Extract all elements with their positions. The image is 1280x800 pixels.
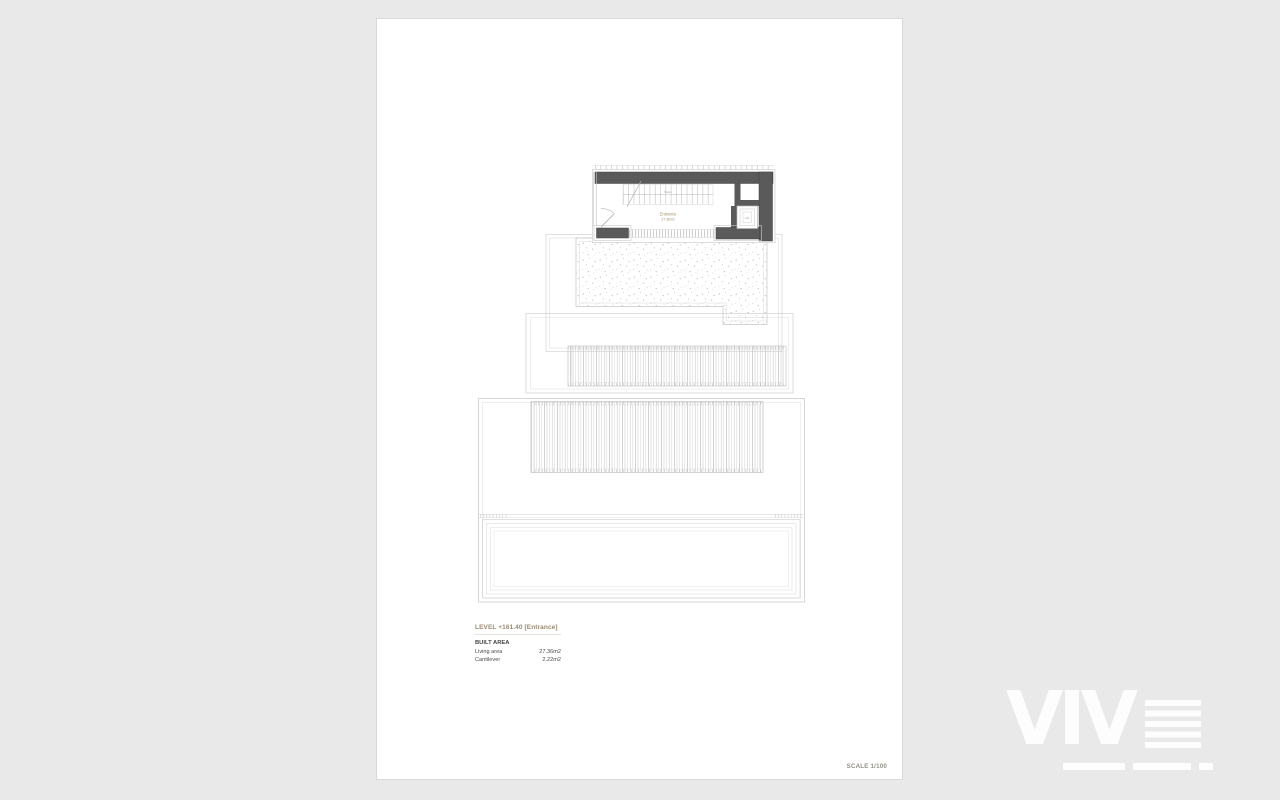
watermark-subtitle-bar [1133,763,1191,770]
title-block: LEVEL +161.40 [Entrance] BUILT AREA Livi… [475,624,561,664]
staircase [623,181,713,207]
floor-plan-drawing: Lift Stairs Entrance 27.36m2 [377,19,904,781]
drawing-sheet: Lift Stairs Entrance 27.36m2 LEVEL +161.… [376,18,903,780]
louver-deck-upper [526,314,793,394]
area-label: Cantilever [475,657,500,665]
gravel-terrace [576,238,767,325]
built-area-heading: BUILT AREA [475,640,561,646]
area-value: 27.36m2 [539,649,561,657]
entrance-structure: Lift Stairs Entrance 27.36m2 [593,166,776,243]
lift-label: Lift [745,216,749,220]
watermark-stripes-icon [1145,700,1201,748]
watermark-logo: VIV [1006,688,1213,770]
room-area-label: 27.36m2 [661,218,674,222]
pool-outlines [483,520,801,599]
lift-shaft: Lift [737,206,758,229]
scale-label: SCALE 1/100 [847,763,887,770]
area-row-cantilever: Cantilever 2.22m2 [475,657,561,665]
area-value: 2.22m2 [542,657,561,665]
louver-deck-lower [479,399,805,603]
level-title: LEVEL +161.40 [Entrance] [475,624,561,635]
room-label: Entrance [660,212,677,217]
watermark-subtitle [1063,763,1213,770]
stairs-label: Stairs [664,190,672,194]
area-row-living: Living area 27.36m2 [475,649,561,657]
watermark-text: VIV [1006,688,1133,750]
area-label: Living area [475,649,502,657]
watermark-row: VIV [1006,688,1213,750]
watermark-subtitle-bar [1199,763,1213,770]
watermark-subtitle-bar [1063,763,1125,770]
